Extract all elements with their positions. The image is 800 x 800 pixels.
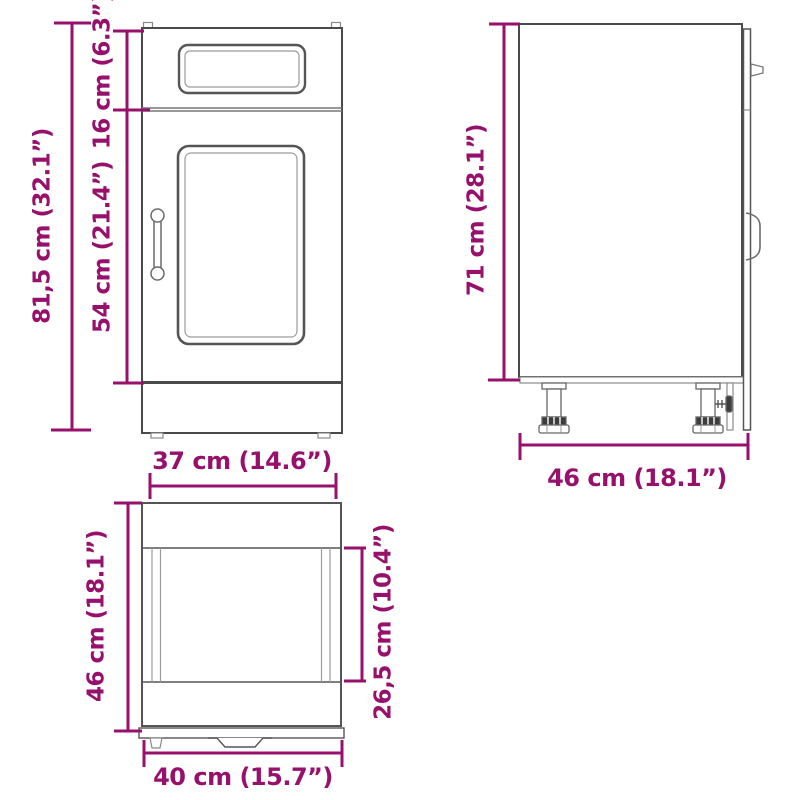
- top-inner-depth-label: 26,5 cm (10.4”): [373, 524, 396, 720]
- front-door-height-label: 54 cm (21.4”): [92, 161, 115, 333]
- front-total-height-label: 81,5 cm (32.1”): [32, 128, 55, 324]
- side-height-line: [488, 24, 520, 381]
- top-depth-line: [114, 503, 142, 731]
- front-drawer-height-label: 16 cm (6.3”): [92, 0, 115, 149]
- front-width-label: 37 cm (14.6”): [152, 449, 332, 473]
- front-view-drawing: [142, 23, 342, 439]
- side-depth-line: [520, 433, 748, 460]
- drawer-handle-notch: [208, 738, 272, 747]
- cabinet-line-art: [0, 0, 800, 800]
- front-width-line: [150, 473, 336, 499]
- side-view-drawing: [519, 24, 763, 433]
- top-width-label: 40 cm (15.7”): [153, 765, 333, 789]
- side-height-label: 71 cm (28.1”): [466, 124, 489, 296]
- foot-tab: [150, 738, 162, 748]
- dimension-diagram: 81,5 cm (32.1”) 16 cm (6.3”) 54 cm (21.4…: [0, 0, 800, 800]
- top-view-drawing: [139, 503, 344, 748]
- top-depth-label: 46 cm (18.1”): [86, 530, 109, 702]
- hinge-bracket: [751, 64, 763, 76]
- right-leg: [693, 383, 732, 433]
- left-leg: [539, 383, 569, 433]
- side-depth-label: 46 cm (18.1”): [547, 466, 727, 490]
- front-total-height-line: [51, 23, 91, 430]
- top-inner-depth-line: [344, 548, 366, 681]
